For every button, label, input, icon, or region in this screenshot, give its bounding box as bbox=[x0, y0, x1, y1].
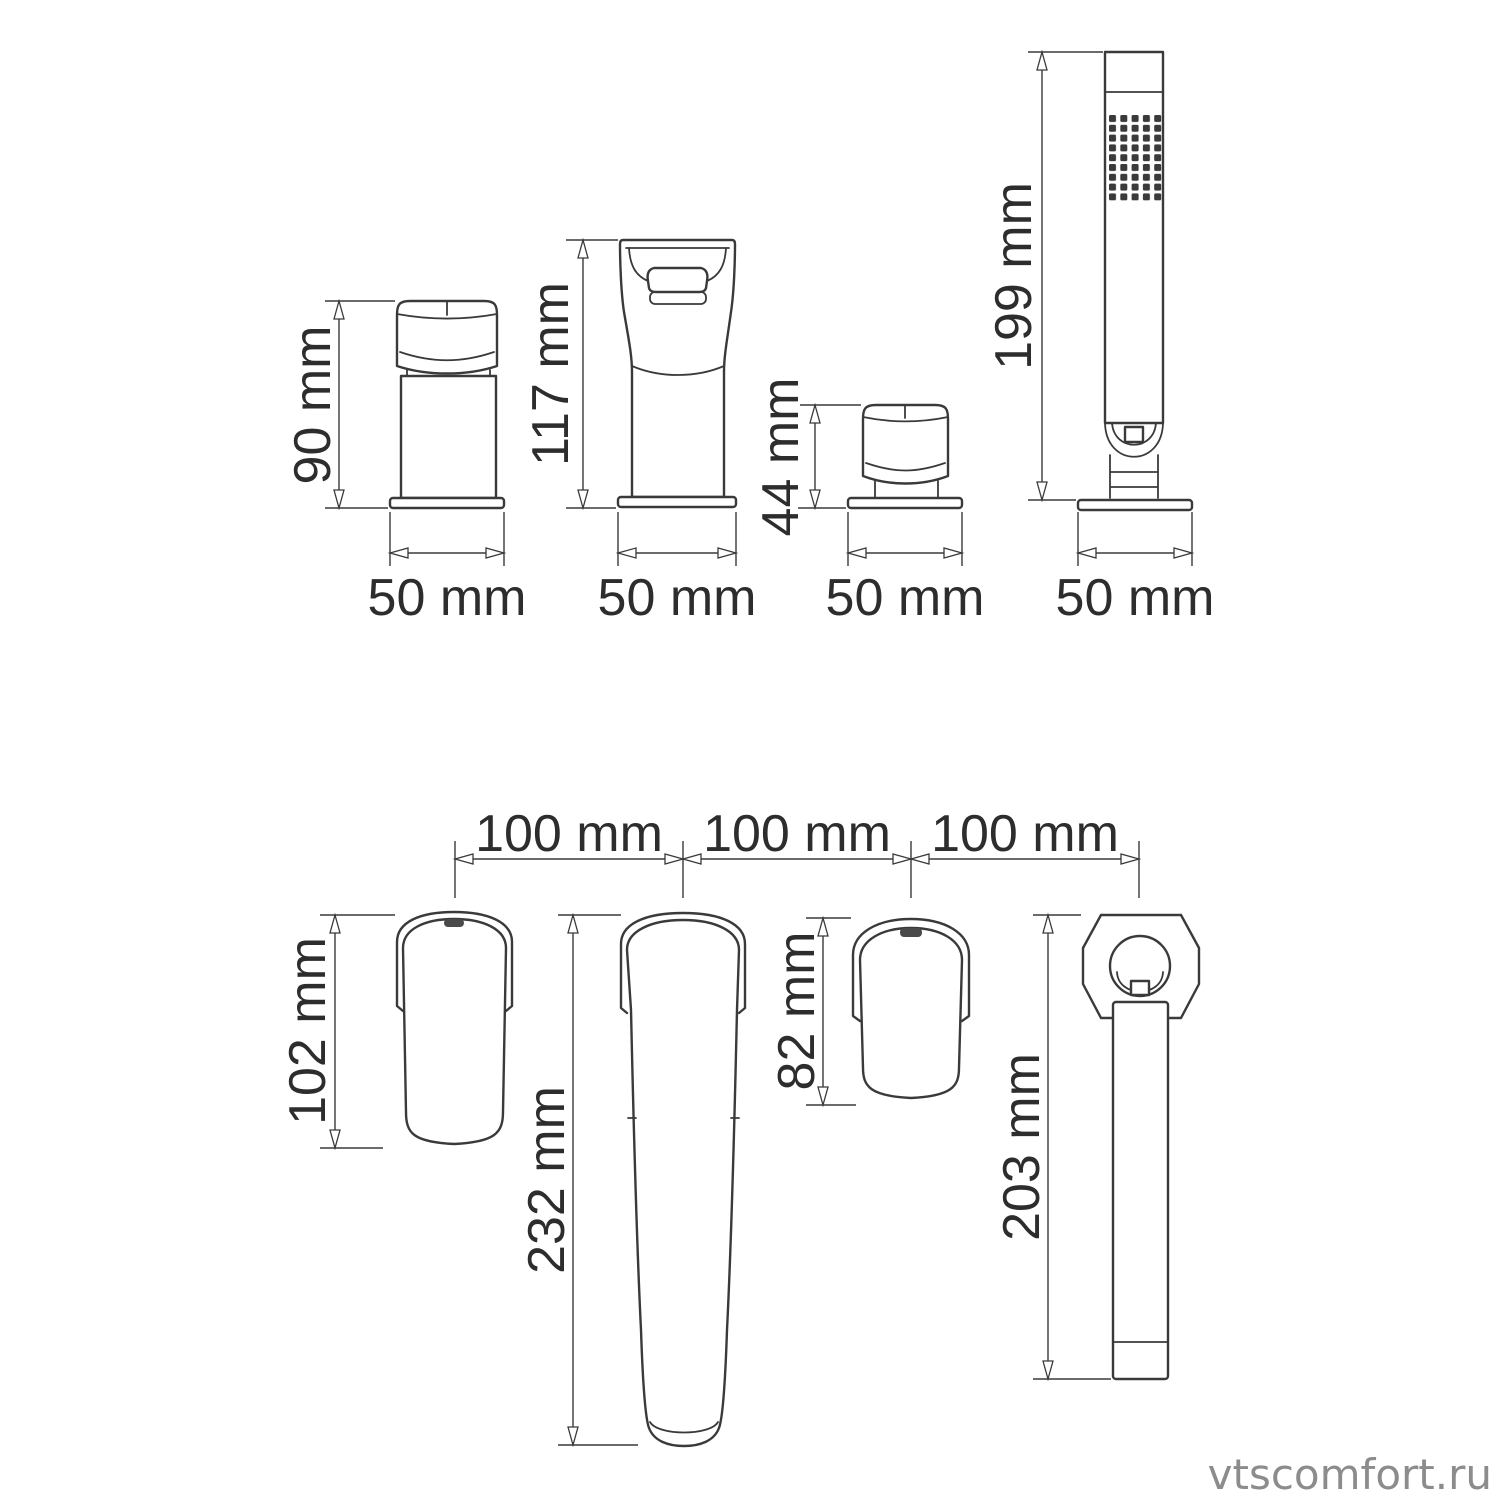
spout-top-body bbox=[627, 920, 739, 1446]
watermark: vtscomfort.ru bbox=[1208, 1450, 1492, 1499]
dim-label-width-spout: 50 mm bbox=[598, 569, 757, 627]
front-view-hand-shower bbox=[1078, 52, 1192, 510]
dim-hole-spacings: 100 mm 100 mm 100 mm bbox=[455, 805, 1139, 898]
dim-label-length-diverter-handle: 82 mm bbox=[768, 932, 826, 1091]
dim-length-mixer-handle: 102 mm bbox=[279, 915, 395, 1148]
top-view-mixer-handle bbox=[397, 912, 512, 1144]
dim-label-width-diverter-handle: 50 mm bbox=[826, 569, 985, 627]
dim-height-mixer-handle: 90 mm bbox=[284, 301, 395, 508]
spout-aerator bbox=[648, 268, 708, 292]
dim-height-diverter-handle: 44 mm bbox=[752, 378, 861, 537]
dim-height-spout: 117 mm bbox=[522, 240, 618, 508]
top-views-row: 100 mm 100 mm 100 mm 102 mm 232 mm bbox=[279, 805, 1199, 1446]
front-views-row: 90 mm 117 mm bbox=[284, 52, 1214, 627]
front-view-mixer-handle bbox=[390, 301, 504, 508]
dim-label-spacing-1: 100 mm bbox=[475, 805, 663, 863]
mixer-handle-base-flange bbox=[390, 498, 504, 508]
front-view-diverter-handle bbox=[848, 405, 962, 508]
dim-length-diverter-handle: 82 mm bbox=[768, 918, 856, 1105]
dim-label-length-mixer-handle: 102 mm bbox=[279, 937, 337, 1125]
dim-label-height-diverter-handle: 44 mm bbox=[752, 378, 810, 537]
spout-base-flange bbox=[618, 497, 736, 507]
hand-shower-wand-top bbox=[1113, 1002, 1168, 1379]
dim-label-spacing-2: 100 mm bbox=[703, 805, 891, 863]
technical-drawing-canvas: 90 mm 117 mm bbox=[0, 0, 1500, 1500]
dim-label-spacing-3: 100 mm bbox=[931, 805, 1119, 863]
mixer-handle-top-body bbox=[403, 919, 506, 1144]
dim-width-mixer-handle: 50 mm bbox=[368, 512, 527, 627]
mixer-handle-top-notch bbox=[444, 919, 464, 927]
diverter-handle-base-flange bbox=[848, 498, 962, 508]
dim-label-height-mixer-handle: 90 mm bbox=[284, 326, 342, 485]
dim-width-hand-shower: 50 mm bbox=[1056, 512, 1215, 627]
dim-label-height-hand-shower: 199 mm bbox=[985, 182, 1043, 370]
hand-shower-holder-clip-top bbox=[1131, 981, 1149, 995]
top-view-hand-shower bbox=[1083, 915, 1199, 1379]
dim-label-height-spout: 117 mm bbox=[522, 282, 580, 466]
diverter-top-body bbox=[860, 928, 962, 1098]
hand-shower-nozzle-grid bbox=[1109, 115, 1162, 201]
dim-label-length-spout: 232 mm bbox=[518, 1086, 576, 1274]
dim-height-hand-shower: 199 mm bbox=[985, 52, 1103, 500]
hand-shower-holder-clip bbox=[1125, 427, 1143, 442]
dim-label-length-hand-shower: 203 mm bbox=[993, 1053, 1051, 1241]
hand-shower-base-flange bbox=[1078, 500, 1192, 510]
technical-drawing-page: 90 mm 117 mm bbox=[0, 0, 1500, 1500]
top-view-spout bbox=[621, 913, 745, 1446]
dim-label-width-hand-shower: 50 mm bbox=[1056, 569, 1215, 627]
front-view-spout bbox=[618, 240, 736, 507]
hand-shower-wand bbox=[1105, 52, 1163, 423]
mixer-handle-body bbox=[401, 376, 496, 498]
dim-width-spout: 50 mm bbox=[598, 512, 757, 627]
top-view-diverter-handle bbox=[853, 919, 969, 1098]
diverter-top-notch bbox=[900, 928, 922, 937]
dim-width-diverter-handle: 50 mm bbox=[826, 512, 985, 627]
dim-label-width-mixer-handle: 50 mm bbox=[368, 569, 527, 627]
